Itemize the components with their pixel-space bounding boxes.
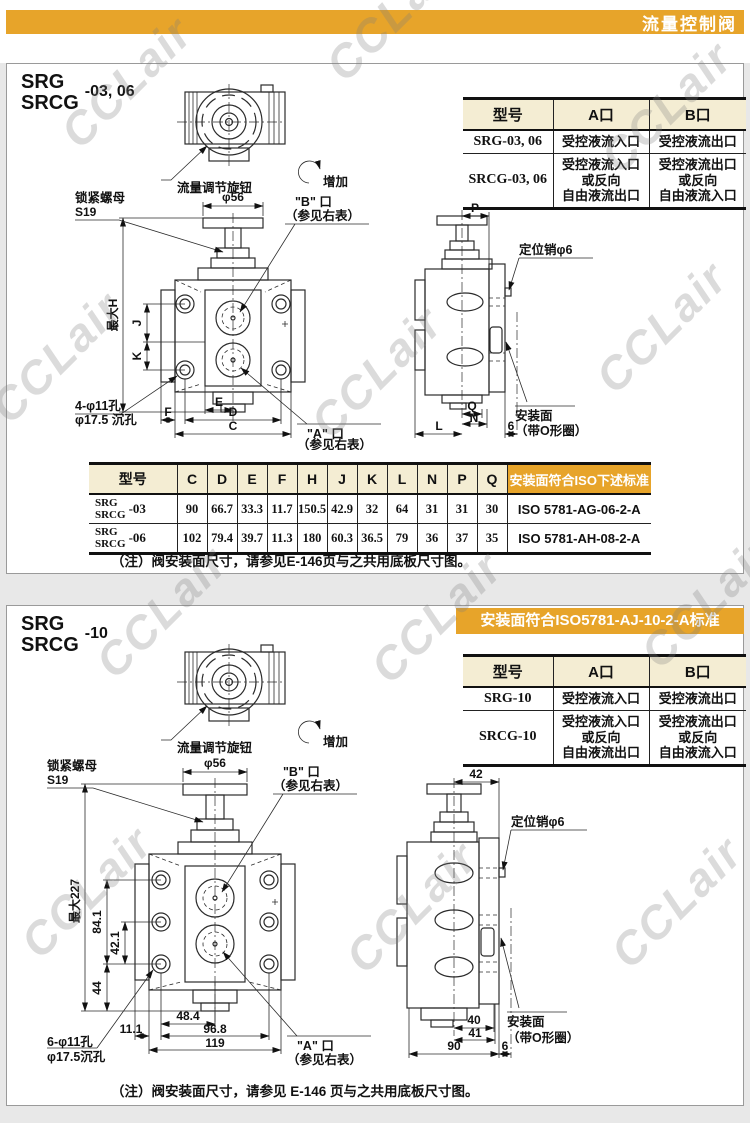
side-view-lineart xyxy=(415,210,517,438)
dim-6-s1: 6 xyxy=(508,419,515,433)
page-header-bar: 流量控制阀 xyxy=(6,10,744,34)
dia56-label-s1: φ56 xyxy=(222,190,244,204)
mount-label2-s2: （带O形圈） xyxy=(507,1030,579,1045)
dim-c-s1: C xyxy=(229,419,238,433)
col-model: 型号 xyxy=(463,656,553,688)
knob-top-view-s1: 流量调节旋钮 增加 xyxy=(157,84,357,196)
dim-41-s2: 41 xyxy=(468,1026,482,1040)
col-model: 型号 xyxy=(463,99,553,131)
model-cell: SRGSRCG-03 xyxy=(89,497,177,521)
dim-90-s2: 90 xyxy=(447,1039,461,1053)
note-s2: （注）阀安装面尺寸，请参见 E-146 页与之共用底板尺寸图。 xyxy=(111,1080,479,1100)
dim-119-s2: 119 xyxy=(205,1036,225,1050)
col-port-b: B口 xyxy=(649,656,746,688)
port-a-note-s2: （参见右表） xyxy=(287,1052,362,1067)
cell-port-b: 受控液流出口 或反向 自由液流入口 xyxy=(649,711,746,766)
dim-42-s2: 42 xyxy=(469,768,483,781)
cell-port-a: 受控液流入口 或反向 自由液流出口 xyxy=(553,154,649,209)
cell-model: SRG-10 xyxy=(463,687,553,711)
dim-p-s1: P xyxy=(471,202,479,215)
table-row: SRCG-10 受控液流入口 或反向 自由液流出口 受控液流出口 或反向 自由液… xyxy=(463,711,746,766)
table-row: SRG-03, 06 受控液流入口 受控液流出口 xyxy=(463,130,746,154)
model-line1-s2: SRG xyxy=(21,614,79,635)
col-port-a: A口 xyxy=(553,99,649,131)
front-view-s2: 锁紧螺母 S19 φ56 "B" 口 （参见右表） 最大227 84.1 42.… xyxy=(45,756,375,1068)
catalog-page: 流量控制阀 SRG SRCG -03, 06 xyxy=(0,0,750,1123)
pin-label-s2: 定位销φ6 xyxy=(510,814,564,829)
holes-label2-s2: φ17.5沉孔 xyxy=(47,1049,106,1064)
section-srg-10: SRG SRCG -10 安装面符合ISO5781-AJ-10-2-A标准 xyxy=(6,605,744,1106)
cell-port-a: 受控液流入口 xyxy=(553,130,649,154)
dim-n-s1: N xyxy=(470,411,479,425)
cell-model: SRCG-03, 06 xyxy=(463,154,553,209)
model-suffix-s1: -03, 06 xyxy=(85,83,135,101)
cell-port-b: 受控液流出口 或反向 自由液流入口 xyxy=(649,154,746,209)
mount-label2-s1: （带O形圈） xyxy=(515,423,587,438)
dim-968-s2: 96.8 xyxy=(203,1022,227,1036)
mount-label1-s2: 安装面 xyxy=(507,1014,545,1029)
dim-44-s2: 44 xyxy=(90,981,104,995)
port-b-note-s2: （参见右表） xyxy=(273,778,348,793)
note-s1: （注）阀安装面尺寸，请参见E-146页与之共用底板尺寸图。 xyxy=(111,550,471,570)
side-view-s2: 42 定位销φ6 40 41 90 6 安装面 （带O形圈） xyxy=(359,768,594,1068)
dia56-label-s2: φ56 xyxy=(204,756,226,770)
cell-port-b: 受控液流出口 xyxy=(649,687,746,711)
model-names-s2: SRG SRCG xyxy=(21,614,79,656)
dim-421-s2: 42.1 xyxy=(108,931,122,955)
port-b-label-s2: "B" 口 xyxy=(283,765,320,779)
lock-nut-label-s2: 锁紧螺母 xyxy=(47,758,98,773)
holes-label1-s2: 6-φ11孔 xyxy=(47,1035,93,1049)
lock-nut-size-s1: S19 xyxy=(75,205,97,219)
holes-label2-s1: φ17.5 沉孔 xyxy=(75,412,137,427)
model-line2-s2: SRCG xyxy=(21,635,79,656)
dim-f-s1: F xyxy=(164,405,171,419)
port-a-note-s1: （参见右表） xyxy=(297,437,372,450)
port-b-label-s1: "B" 口 xyxy=(295,195,332,209)
port-table-s2: 型号 A口 B口 SRG-10 受控液流入口 受控液流出口 SRCG-10 受控… xyxy=(463,654,746,767)
port-b-note-s1: （参见右表） xyxy=(285,208,360,223)
cell-model: SRCG-10 xyxy=(463,711,553,766)
table-row: SRG-10 受控液流入口 受控液流出口 xyxy=(463,687,746,711)
lock-nut-label-s1: 锁紧螺母 xyxy=(75,190,126,205)
cell-model: SRG-03, 06 xyxy=(463,130,553,154)
front-view-lineart xyxy=(161,213,305,422)
cell-port-b: 受控液流出口 xyxy=(649,130,746,154)
iso-banner: 安装面符合ISO5781-AJ-10-2-A标准 xyxy=(456,608,744,634)
col-port-a: A口 xyxy=(553,656,649,688)
increase-label-s1: 增加 xyxy=(323,174,348,189)
dim-table-header-row: 型号 C D E F H J K L N P Q 安装面符合ISO下述标准 xyxy=(89,464,651,495)
lock-nut-size-s2: S19 xyxy=(47,773,69,787)
table-row: SRCG-03, 06 受控液流入口 或反向 自由液流出口 受控液流出口 或反向… xyxy=(463,154,746,209)
dim-l-s1: L xyxy=(435,419,442,433)
knob-top-view-lineart xyxy=(161,84,320,183)
dim-maxh-s1: 最大H xyxy=(105,299,120,332)
model-suffix-s2: -10 xyxy=(85,625,108,643)
front-view-s1: 锁紧螺母 S19 φ56 "B" 口 （参见右表） 最大H J K 4-φ11孔… xyxy=(73,188,383,450)
model-title-s2: SRG SRCG -10 xyxy=(21,614,108,656)
dim-max227-s2: 最大227 xyxy=(67,879,82,923)
dim-e-s1: E xyxy=(215,395,223,409)
front-view-dimensions xyxy=(75,202,381,438)
dim-841-s2: 84.1 xyxy=(90,910,104,934)
port-table-header-row: 型号 A口 B口 xyxy=(463,99,746,131)
increase-label-s2: 增加 xyxy=(323,734,348,749)
port-table-s1: 型号 A口 B口 SRG-03, 06 受控液流入口 受控液流出口 SRCG-0… xyxy=(463,97,746,210)
port-a-label-s2: "A" 口 xyxy=(297,1039,334,1053)
holes-label1-s1: 4-φ11孔 xyxy=(75,399,121,413)
dim-111-s2: 11.1 xyxy=(120,1022,143,1036)
knob-top-view-s2: 流量调节旋钮 增加 xyxy=(157,644,357,756)
model-line2-s1: SRCG xyxy=(21,93,79,114)
port-table-header-row: 型号 A口 B口 xyxy=(463,656,746,688)
table-row: SRGSRCG-03 90 66.7 33.3 11.7 150.5 42.9 … xyxy=(89,494,651,524)
dim-j-s1: J xyxy=(130,320,144,327)
model-names-s1: SRG SRCG xyxy=(21,72,79,114)
col-port-b: B口 xyxy=(649,99,746,131)
side-view-s1: P 定位销φ6 Q N L 6 安装面 （带O形圈） xyxy=(387,202,602,442)
cell-port-a: 受控液流入口 xyxy=(553,687,649,711)
cell-port-a: 受控液流入口 或反向 自由液流出口 xyxy=(553,711,649,766)
knob-top-view-lineart xyxy=(161,644,320,743)
page-title: 流量控制阀 xyxy=(642,10,744,35)
iso-value: ISO 5781-AH-08-2-A xyxy=(507,524,651,554)
mount-label1-s1: 安装面 xyxy=(515,408,553,423)
dim-k-s1: K xyxy=(130,351,144,360)
dim-table-s1: 型号 C D E F H J K L N P Q 安装面符合ISO下述标准 xyxy=(89,462,651,555)
model-cell: SRGSRCG-06 xyxy=(89,526,177,550)
model-line1-s1: SRG xyxy=(21,72,79,93)
iso-header: 安装面符合ISO下述标准 xyxy=(507,464,651,495)
dim-484-s2: 48.4 xyxy=(176,1009,200,1023)
model-title-s1: SRG SRCG -03, 06 xyxy=(21,72,135,114)
iso-value: ISO 5781-AG-06-2-A xyxy=(507,494,651,524)
section-srg-0306: SRG SRCG -03, 06 流量调节旋钮 增加 xyxy=(6,63,744,574)
dim-d-s1: D xyxy=(229,405,238,419)
pin-label-s1: 定位销φ6 xyxy=(518,242,572,257)
knob-label-s2: 流量调节旋钮 xyxy=(177,740,253,755)
dim-40-s2: 40 xyxy=(467,1013,481,1027)
